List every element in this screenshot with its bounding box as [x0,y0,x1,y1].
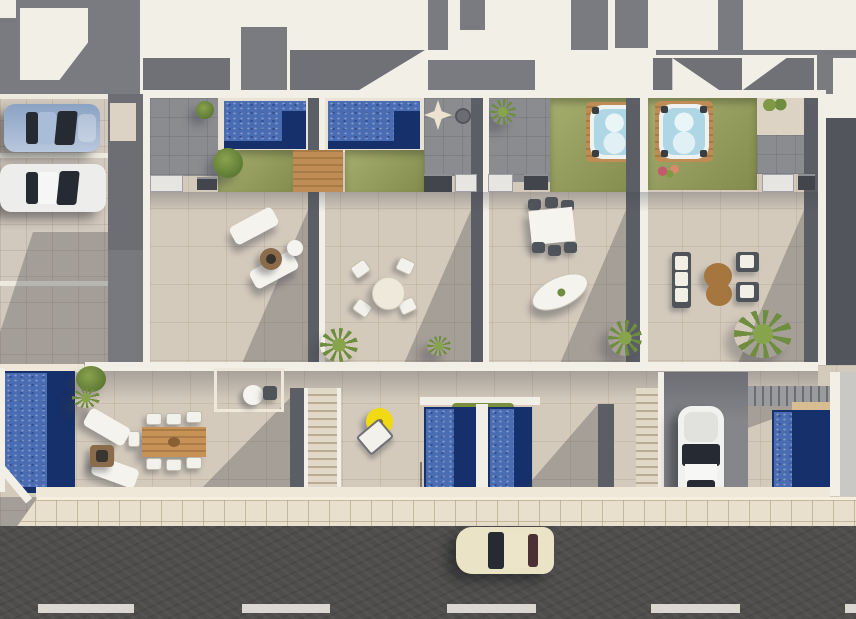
car-hood-highlight [78,114,96,142]
end-garden-wall [830,372,840,496]
car-roof [38,172,58,204]
rear-window [528,534,538,567]
pool-water [5,373,47,487]
exterior-staircase [308,388,338,494]
potted-plant [196,101,214,119]
roof-slope-highlight [358,50,426,91]
lane-marking-dash [447,604,536,613]
garden-swimming-pool [3,371,75,493]
penthouse-roof [140,55,233,94]
dining-chair [532,242,545,253]
parking-stall-line [0,94,108,99]
parking-stall-line [0,153,108,158]
sidewalk [14,497,856,528]
sofa-cushion [675,256,688,270]
garden-chair [146,413,162,425]
balcony-table [243,385,263,405]
garden-chair [186,411,202,423]
wood-deck-steps [293,150,343,192]
neighbor-roof-edge [826,94,856,118]
hot-tub-corner-seat [661,150,668,157]
fire-pit-center [96,450,108,462]
car-roof [38,112,56,144]
outdoor-kitchen-cabinet [197,177,217,190]
armchair-cushion [740,255,754,268]
garden-chair [186,457,202,469]
car-roof [685,464,717,480]
rooftop-white [287,0,428,47]
flower-cluster [657,164,679,180]
windshield [488,532,504,569]
driveway-lower [108,250,146,364]
daybed-plant [556,287,567,298]
garden-chair [146,458,162,470]
garden-chair [166,413,182,425]
garden-wall [0,364,84,372]
party-wall-cap [640,98,648,372]
terrace-front-wall [85,362,818,371]
party-wall-cap [483,98,489,372]
pool-water [490,409,514,489]
coffee-table [706,282,732,306]
hot-tub-corner-seat [661,106,668,113]
dining-chair [545,197,558,208]
outdoor-kitchen-cabinet [424,174,452,192]
plunge-pool [488,407,532,494]
roof-parapet [428,50,538,60]
outdoor-sofa [672,252,691,308]
car-roof [504,533,528,568]
penthouse-roof [287,47,428,94]
palm-tree [734,310,792,358]
garden-chair [166,459,182,471]
outdoor-kitchen-counter [762,174,794,192]
lane-marking-dash [38,604,134,613]
garden-wall [598,404,614,494]
pool-water [426,409,454,489]
windshield [682,444,720,466]
fire-bowl-center [266,254,276,264]
rear-window [26,172,38,204]
palm-plant [490,99,516,125]
roof-vent [460,0,485,30]
paving-patch [110,103,136,141]
pool-edge [224,141,306,149]
lane-marking-dash [651,604,740,613]
aerial-render-scene [0,0,856,619]
neighbor-paving [840,372,856,496]
hot-tub-corner-seat [592,150,599,157]
parked-car-white [0,164,106,212]
parked-car-blue [4,104,100,152]
unit2-lawn [345,150,425,192]
bistro-table [455,108,471,124]
armchair-cushion [740,285,754,298]
unit1-swimming-pool [224,101,306,149]
pool-water [774,412,792,494]
counter-row-shadow [150,192,818,212]
rooftop-white [0,0,16,18]
armchair [736,252,759,272]
windshield [56,171,80,205]
party-wall-cap [319,98,325,368]
dining-chair [564,242,577,253]
street-car-cream [456,527,554,574]
round-dining-table [372,277,405,310]
roof-slope-highlight [672,58,720,91]
roof-vent [571,0,608,50]
rooftop-white [818,0,856,48]
penthouse-roof [650,55,817,94]
hot-tub-corner-seat [700,106,707,113]
palm-plant [320,328,358,362]
wood-dining-table [142,427,206,457]
car-hood-highlight [684,412,718,442]
outdoor-kitchen-cabinet [524,174,548,190]
small-plants [761,99,789,111]
rear-parapet [143,90,824,98]
pool-edge [328,141,420,149]
roof-slope-highlight [742,58,787,91]
windshield [54,111,78,145]
side-table [287,240,303,256]
lane-marking-dash [845,604,856,613]
armchair [736,282,759,302]
balcony-chair [263,386,277,400]
party-wall [471,98,483,372]
dining-chair [528,199,541,210]
garden-plant [72,388,100,408]
rooftop-white [833,58,856,94]
hot-tub-water [663,108,705,155]
outdoor-kitchen-counter [150,175,183,192]
roof-vent [615,0,648,48]
rooftop-white [140,0,233,56]
pool-divider-wall [476,404,488,496]
rooftop-white [535,0,608,94]
palm-plant [427,336,451,356]
table-centerpiece [168,437,180,447]
stair-rail [337,388,341,494]
sofa-cushion [675,272,688,286]
outdoor-kitchen-cabinet [798,174,815,190]
rooftop-white [648,0,718,50]
garden-tree [213,148,243,178]
end-wall [818,90,826,372]
lane-marking-dash [242,604,330,613]
hot-tub-corner-seat [700,150,707,157]
sofa-cushion [675,288,688,302]
fire-bowl [260,248,282,270]
roof-parapet [233,27,241,94]
hot-tub-deck [655,101,713,162]
rear-window [26,112,38,144]
outdoor-kitchen-counter [488,174,513,192]
dining-table [528,207,575,245]
exterior-staircase [636,388,658,494]
side-wall [143,90,150,372]
palm-plant [608,320,642,356]
neighbor-building [826,118,856,372]
dining-chair [548,245,561,256]
fire-pit [90,445,114,467]
plunge-pool [772,410,830,497]
party-wall [804,98,818,372]
outdoor-kitchen-counter [455,174,477,192]
unit2-swimming-pool [328,101,420,149]
driveway-car-white [678,406,724,496]
street-front-wall [36,487,830,498]
hot-tub-corner-seat [592,107,599,114]
plunge-pool [424,407,476,494]
